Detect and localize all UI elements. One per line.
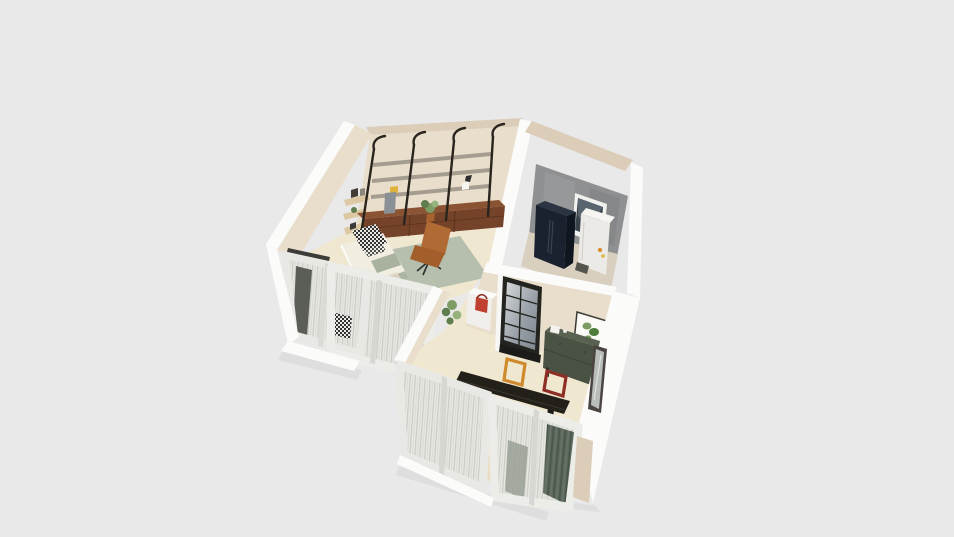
leaning-board xyxy=(384,192,396,214)
floorplan-3d-view[interactable] xyxy=(0,0,954,537)
decor-item xyxy=(563,329,567,333)
navy-fridge[interactable] xyxy=(534,201,576,269)
mini-plant xyxy=(351,207,357,213)
detergent xyxy=(601,254,605,258)
render-stage xyxy=(0,0,954,537)
detergent xyxy=(598,248,602,252)
white-mug xyxy=(462,182,469,190)
mini-frame xyxy=(360,188,365,196)
sage-curtain-panel xyxy=(505,440,528,499)
black-glass-door[interactable] xyxy=(495,273,542,363)
